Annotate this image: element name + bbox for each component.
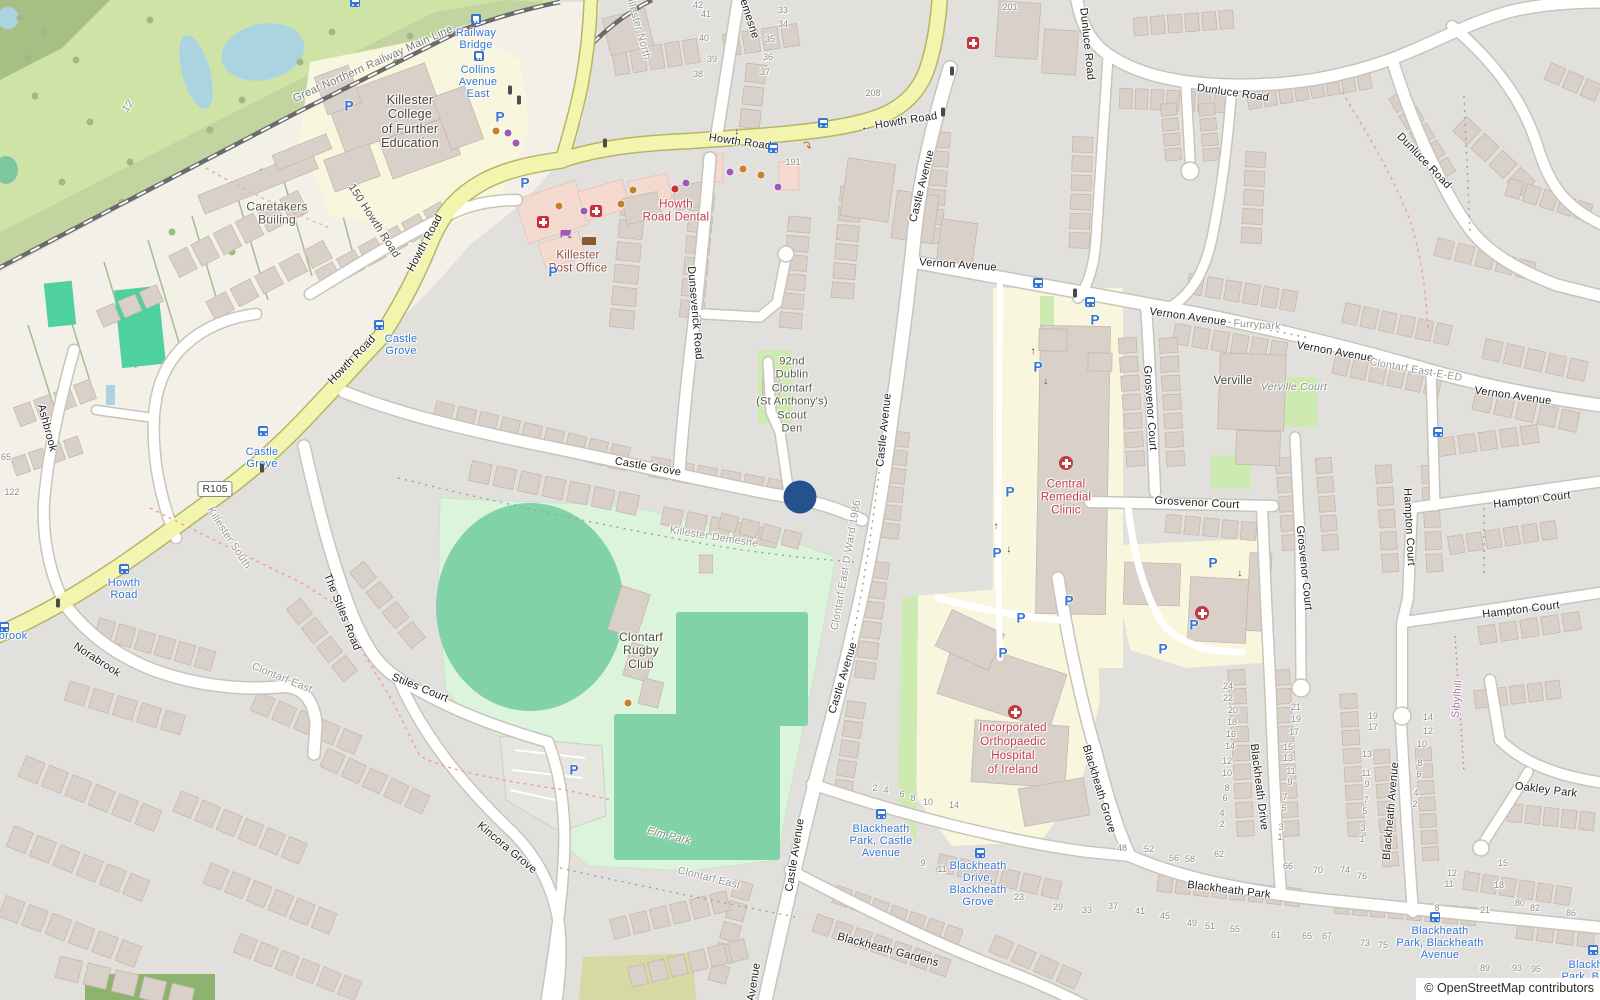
pharmacy-icon — [537, 216, 549, 228]
supermarket-icon — [561, 230, 572, 238]
bus-stop-icon — [258, 426, 268, 436]
house-number: 45 — [1160, 911, 1170, 921]
hospital-icon — [1195, 606, 1209, 620]
street-label: Hampton Court — [1482, 599, 1561, 620]
street-label: Vernon Avenue — [1149, 306, 1228, 329]
street-label: Blackheath Park — [1187, 879, 1272, 901]
parking-icon: P — [1033, 360, 1042, 375]
house-number: 17 — [1368, 722, 1378, 732]
parking-icon: P — [1090, 313, 1099, 328]
street-label: Grosvenor Court — [1154, 495, 1240, 511]
location-marker[interactable] — [784, 481, 817, 514]
house-number: 5 — [1362, 806, 1367, 816]
house-number: 208 — [865, 88, 880, 98]
poi-dot — [581, 208, 588, 215]
area-label: Clontarf East-E-ED — [1369, 356, 1463, 384]
house-number: 15 — [1283, 742, 1293, 752]
house-number: 95 — [1531, 964, 1541, 974]
house-number: 58 — [1185, 854, 1195, 864]
house-number: 73 — [1360, 938, 1370, 948]
parking-icon: P — [1005, 485, 1014, 500]
area-label: Clontarf East-D Ward 1986 — [829, 499, 864, 631]
oneway-arrow-icon: ↑ — [735, 126, 740, 136]
bus-stop-icon — [119, 564, 129, 574]
hospital-icon — [1059, 456, 1073, 470]
house-number: 12 — [1447, 868, 1457, 878]
house-number: 35 — [765, 34, 775, 44]
street-label: ← Howth Road — [860, 110, 939, 134]
house-number: 5 — [1281, 803, 1286, 813]
turn-arrow-icon: ↷ — [800, 139, 814, 153]
house-number: 82 — [1530, 903, 1540, 913]
poi-label: Verville — [1213, 375, 1252, 387]
poi-dot — [758, 172, 765, 179]
house-number: 12 — [1423, 726, 1433, 736]
traffic-signal-icon — [1073, 289, 1077, 298]
oneway-arrow-icon: ↑ — [994, 522, 999, 532]
hospital-icon — [1008, 705, 1022, 719]
poi-dot — [740, 166, 747, 173]
house-number: 67 — [1322, 931, 1332, 941]
street-label: Dunseverick Road — [685, 266, 705, 361]
house-number: 8 — [1417, 758, 1422, 768]
traffic-signal-icon — [260, 464, 264, 473]
house-number: 51 — [1205, 921, 1215, 931]
house-number: 10 — [923, 797, 933, 807]
house-number: 29 — [1053, 902, 1063, 912]
area-label: Sibylhill — [1449, 680, 1464, 719]
house-number: 33 — [778, 5, 788, 15]
house-number: 1 — [1359, 834, 1364, 844]
parking-icon: P — [1208, 556, 1217, 571]
street-label: Hampton Court — [1401, 488, 1417, 566]
bus-stop-icon — [1033, 278, 1043, 288]
house-number: 38 — [693, 69, 703, 79]
bus-stop-label: CollinsAvenueEast — [459, 64, 498, 100]
house-number: 13 — [1283, 753, 1293, 763]
house-number: 10 — [1222, 768, 1232, 778]
house-number: 75 — [1378, 940, 1388, 950]
house-number: 18 — [1227, 717, 1237, 727]
parking-icon: P — [548, 265, 557, 280]
street-label: Blackheath Grove — [1080, 744, 1118, 835]
street-label: Castle Avenue — [826, 641, 859, 715]
street-label: Ashbrook — [35, 403, 59, 453]
house-number: 9 — [1364, 779, 1369, 789]
bus-stop-label: BlackheathPark, BlackheathAvenue — [1396, 925, 1483, 961]
house-number: 39 — [707, 54, 717, 64]
house-number: 70 — [1313, 865, 1323, 875]
house-number: 61 — [1271, 930, 1281, 940]
house-number: 2 — [1219, 819, 1224, 829]
poi-label: CaretakersBuiling — [246, 200, 307, 227]
traffic-signal-icon — [603, 139, 607, 148]
parking-icon: P — [1064, 594, 1073, 609]
bus-stop-label: HowthRoad — [108, 577, 140, 601]
house-number: 122 — [4, 487, 19, 497]
oneway-arrow-icon: ↑ — [1238, 568, 1243, 578]
area-label: Killester North — [623, 0, 654, 61]
street-label: Demesne — [735, 0, 762, 40]
bus-stop-label: BlackheathDrive,BlackheathGrove — [950, 860, 1007, 908]
house-number: 18 — [1494, 880, 1504, 890]
street-label: Norabrook — [71, 640, 122, 679]
street-label: Vernon Avenue — [1296, 339, 1375, 364]
house-number: 36 — [763, 52, 773, 62]
house-number: 41 — [1135, 906, 1145, 916]
house-number: 21 — [1291, 702, 1301, 712]
house-number: 1 — [1277, 832, 1282, 842]
house-number: 40 — [699, 33, 709, 43]
traffic-signal-icon — [56, 599, 60, 608]
poi-dot — [625, 700, 632, 707]
parking-icon: P — [344, 99, 353, 114]
house-number: 3 — [1278, 822, 1283, 832]
street-label: Blackheath Gardens — [836, 931, 940, 970]
house-number: 16 — [1226, 729, 1236, 739]
street-label: Stiles Court — [390, 671, 450, 705]
house-number: 4 — [883, 785, 888, 795]
house-number: 37 — [760, 67, 770, 77]
oneway-arrow-icon: ↑ — [1044, 376, 1049, 386]
area-label: Killester South — [205, 505, 254, 571]
house-number: 76 — [1357, 871, 1367, 881]
poi-label: ClontarfRugbyClub — [619, 630, 663, 671]
map-canvas[interactable]: Great Northern Railway Main LineHowth Ro… — [0, 0, 1600, 1000]
house-number: 8 — [1224, 783, 1229, 793]
house-number: 2 — [872, 783, 877, 793]
house-number: 55 — [1230, 924, 1240, 934]
street-label: Howth Road — [708, 132, 772, 153]
street-label: Vernon Avenue — [919, 256, 997, 273]
parking-icon: P — [520, 176, 529, 191]
bus-stop-icon — [374, 320, 384, 330]
house-number: 12 — [1222, 756, 1232, 766]
area-label: Killester Demesne — [669, 524, 759, 550]
house-number: 22 — [1223, 693, 1233, 703]
house-number: 13 — [1362, 749, 1372, 759]
house-number: 6 — [899, 789, 904, 799]
house-number: 80 — [1515, 898, 1525, 908]
parking-icon: P — [1158, 642, 1167, 657]
house-number: 14 — [1225, 741, 1235, 751]
house-number: 21 — [1480, 905, 1490, 915]
street-label: Castle Grove — [614, 455, 682, 478]
poi-dot — [683, 180, 690, 187]
area-label: 12 — [120, 98, 137, 115]
street-label: Vernon Avenue — [1474, 385, 1553, 408]
house-number: 7 — [1363, 795, 1368, 805]
house-number: 20 — [1228, 705, 1238, 715]
street-label: Castle Avenue — [874, 393, 894, 468]
street-label: Grosvenor Court — [1294, 525, 1315, 611]
traffic-signal-icon — [941, 108, 945, 117]
bus-stop-icon — [0, 622, 9, 632]
bus-stop-icon — [975, 848, 985, 858]
poi-dot — [727, 169, 734, 176]
house-number: 62 — [1214, 849, 1224, 859]
poi-dot — [618, 201, 625, 208]
oneway-arrow-icon: ↑ — [1007, 544, 1012, 554]
poi-dot — [630, 187, 637, 194]
house-number: 201 — [1002, 2, 1017, 12]
poi-dot — [775, 184, 782, 191]
area-label: Clontarf East — [250, 660, 314, 695]
traffic-signal-icon — [517, 96, 521, 105]
bus-stop-icon — [1588, 945, 1598, 955]
street-label: Castle Avenue — [907, 149, 937, 224]
poi-label: 92ndDublinClontarf(St Anthony's)ScoutDen — [756, 355, 828, 436]
house-number: 9 — [920, 858, 925, 868]
street-label: Kincora Grove — [475, 820, 539, 876]
house-number: 37 — [1108, 901, 1118, 911]
house-number: 89 — [1480, 963, 1490, 973]
house-number: 7 — [1282, 792, 1287, 802]
pharmacy-icon — [967, 37, 979, 49]
house-number: 14 — [949, 800, 959, 810]
bus-stop-label: CastleGrove — [385, 333, 418, 357]
street-label: Blackheath Avenue — [1381, 762, 1402, 861]
parking-icon: P — [992, 546, 1001, 561]
house-number: 17 — [1289, 727, 1299, 737]
poi-dot — [505, 130, 512, 137]
bus-stop-icon — [1085, 297, 1095, 307]
house-number: 191 — [785, 157, 800, 167]
bus-stop-icon — [1433, 427, 1443, 437]
traffic-signal-icon — [950, 67, 954, 76]
house-number: 56 — [1169, 853, 1179, 863]
street-label: Oakley Park — [1514, 780, 1578, 800]
poi-label: CentralRemedialClinic — [1041, 479, 1092, 518]
route-shield-r105: R105 — [197, 481, 232, 497]
house-number: 11 — [1361, 768, 1370, 778]
street-label: Dunluce Road — [1196, 82, 1270, 104]
railway-station-icon — [474, 51, 484, 61]
house-number: 11 — [1444, 879, 1453, 889]
street-label: Dunluce Road — [1077, 7, 1097, 81]
street-label: Dunluce Road — [1394, 131, 1453, 192]
house-number: 6 — [1222, 793, 1227, 803]
house-number: 23 — [1014, 892, 1024, 902]
poi-dot — [493, 128, 500, 135]
area-label: Furrypark — [1233, 317, 1281, 332]
street-label: Blackheath Drive — [1248, 743, 1271, 831]
house-number: 74 — [1340, 865, 1350, 875]
poi-dot — [513, 140, 520, 147]
house-number: 65 — [1302, 931, 1312, 941]
house-number: 9 — [1287, 777, 1292, 787]
area-label: Clontarf East — [677, 864, 742, 891]
poi-dot — [556, 203, 563, 210]
poi-label: IncorporatedOrthopaedicHospitalof Irelan… — [979, 721, 1047, 777]
bus-stop-icon — [876, 809, 886, 819]
house-number: 48 — [1117, 843, 1127, 853]
house-number: 3 — [1360, 823, 1365, 833]
house-number: 49 — [1187, 918, 1197, 928]
osm-attribution[interactable]: © OpenStreetMap contributors — [1416, 978, 1600, 1000]
parking-icon: P — [1189, 618, 1198, 633]
house-number: 4 — [1219, 808, 1224, 818]
house-number: 33 — [1082, 905, 1092, 915]
railway-station-icon — [471, 14, 481, 24]
house-number: 65 — [1, 452, 11, 462]
house-number: 10 — [1417, 739, 1427, 749]
street-label: Grosvenor Court — [1141, 365, 1159, 451]
street-label: Avenue — [745, 962, 763, 1000]
street-label: Hampton Court — [1493, 489, 1572, 510]
house-number: 11 — [1286, 766, 1295, 776]
street-label: Castle Avenue — [783, 818, 806, 893]
parking-icon: P — [1016, 611, 1025, 626]
oneway-arrow-icon: ↑ — [1031, 347, 1036, 357]
bus-stop-label: RailwayBridge — [456, 27, 496, 51]
house-number: 52 — [1144, 844, 1154, 854]
pharmacy-icon — [590, 205, 602, 217]
house-number: 19 — [1291, 714, 1301, 724]
parking-icon: P — [495, 110, 504, 125]
house-number: 15 — [1498, 858, 1508, 868]
parking-icon: P — [569, 763, 578, 778]
house-number: 66 — [1283, 861, 1293, 871]
street-label: 150 Howth Road — [346, 182, 403, 260]
house-number: 34 — [778, 19, 788, 29]
house-number: 24 — [1223, 681, 1233, 691]
house-number: 41 — [701, 9, 711, 19]
house-number: 19 — [1368, 711, 1378, 721]
house-number: 6 — [1416, 769, 1421, 779]
house-number: 11 — [937, 864, 946, 874]
post-office-icon — [582, 235, 596, 245]
street-label: Howth Road — [326, 333, 378, 387]
poi-label: HowthRoad Dental — [643, 199, 710, 224]
house-number: 2 — [1412, 799, 1417, 809]
bus-stop-icon — [1430, 912, 1440, 922]
bus-stop-icon — [350, 0, 360, 7]
bus-stop-icon — [768, 143, 778, 153]
street-label: The Stiles Road — [321, 572, 363, 653]
traffic-signal-icon — [508, 86, 512, 95]
parking-icon: P — [998, 646, 1007, 661]
area-label: Elm Park — [646, 825, 692, 847]
bus-stop-label: BlackheathPark, CastleAvenue — [850, 823, 913, 859]
poi-dot — [672, 186, 679, 193]
house-number: 14 — [1423, 712, 1433, 722]
bus-stop-icon — [818, 118, 828, 128]
house-number: 4 — [1413, 788, 1418, 798]
house-number: 86 — [1566, 908, 1576, 918]
street-label: Howth Road — [405, 212, 445, 273]
poi-label: KillesterCollegeof FurtherEducation — [381, 93, 439, 151]
area-label: Verville Court — [1261, 381, 1327, 393]
house-number: 93 — [1512, 963, 1522, 973]
house-number: 8 — [910, 793, 915, 803]
